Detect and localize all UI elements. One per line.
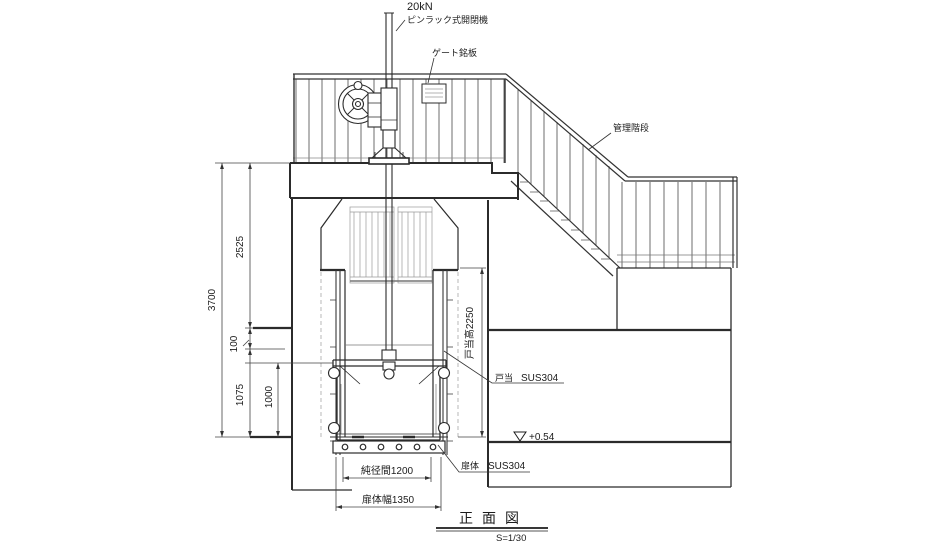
landing-railing xyxy=(617,177,737,268)
dim-100: 100 xyxy=(229,335,240,352)
hoist-assembly xyxy=(339,13,447,379)
dim-1000: 1000 xyxy=(264,385,275,408)
screen-panels xyxy=(350,207,432,283)
dim-1350: 扉体幅1350 xyxy=(362,493,415,506)
stem-rod xyxy=(384,13,394,352)
nameplate xyxy=(422,84,446,103)
leaf-label: 扉体 xyxy=(461,460,479,471)
dim-1075: 1075 xyxy=(235,383,246,406)
dim-2525: 2525 xyxy=(235,235,246,258)
dimension-lines xyxy=(215,163,486,511)
doorstop-material: SUS304 xyxy=(521,373,559,384)
gate-front-view-drawing: 20kN ピンラック式開閉機 ゲート銘板 管理階段 戸当 SUS304 +0.5… xyxy=(0,0,925,547)
stem-coupling xyxy=(382,350,396,379)
drawing-title: 正面図 xyxy=(459,510,528,526)
platform-railing xyxy=(293,74,506,163)
dim-1200: 純径間1200 xyxy=(361,464,414,477)
leaf-material: SUS304 xyxy=(488,461,526,472)
dim-2250: 戸当高2250 xyxy=(463,306,476,359)
dimension-texts: 3700 2525 100 1075 1000 戸当高2250 純径間1200 … xyxy=(207,235,476,506)
stairs-label: 管理階段 xyxy=(613,122,649,133)
sill-plate xyxy=(333,441,445,453)
nameplate-label: ゲート銘板 xyxy=(432,47,477,58)
hoist-type-label: ピンラック式開閉機 xyxy=(407,14,488,25)
drawing-scale: S=1/30 xyxy=(496,533,526,544)
gate-body xyxy=(337,377,440,440)
deck-slab xyxy=(290,163,518,200)
concrete-structure xyxy=(250,163,731,490)
stair-railing xyxy=(506,74,628,258)
elevation-triangle-icon xyxy=(514,432,526,441)
stairs xyxy=(511,173,620,276)
title-block: 正面図 S=1/30 xyxy=(436,510,548,544)
dim-3700: 3700 xyxy=(207,288,218,311)
doorstop-label: 戸当 xyxy=(495,372,513,383)
elevation-value: +0.54 xyxy=(529,432,555,443)
drawing-sheet: 20kN ピンラック式開閉機 ゲート銘板 管理階段 戸当 SUS304 +0.5… xyxy=(0,0,925,547)
hoist-capacity-label: 20kN xyxy=(407,1,433,13)
